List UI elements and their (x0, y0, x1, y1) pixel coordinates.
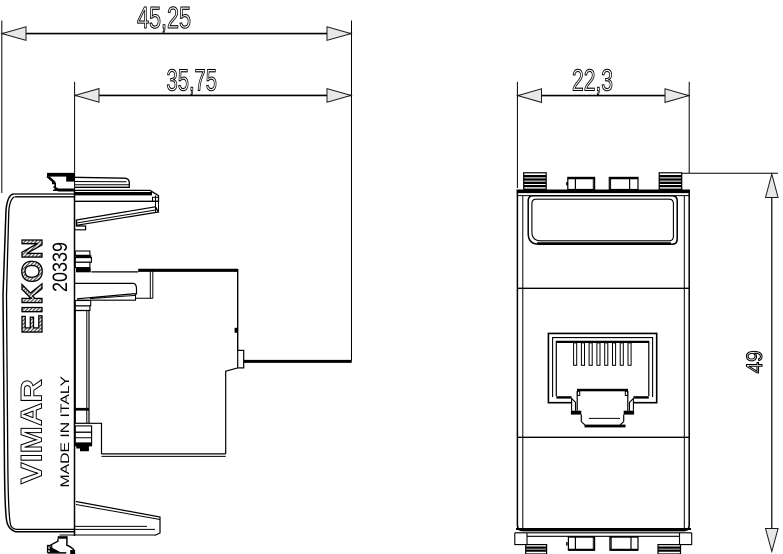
svg-text:45,25: 45,25 (137, 0, 191, 35)
svg-text:MADE IN ITALY: MADE IN ITALY (58, 376, 72, 488)
svg-text:49: 49 (742, 350, 767, 373)
svg-text:20339: 20339 (49, 242, 72, 292)
svg-text:35,75: 35,75 (167, 63, 218, 98)
svg-text:22,3: 22,3 (572, 62, 613, 97)
svg-text:EIKON: EIKON (17, 237, 49, 334)
svg-text:VIMAR: VIMAR (16, 379, 49, 484)
